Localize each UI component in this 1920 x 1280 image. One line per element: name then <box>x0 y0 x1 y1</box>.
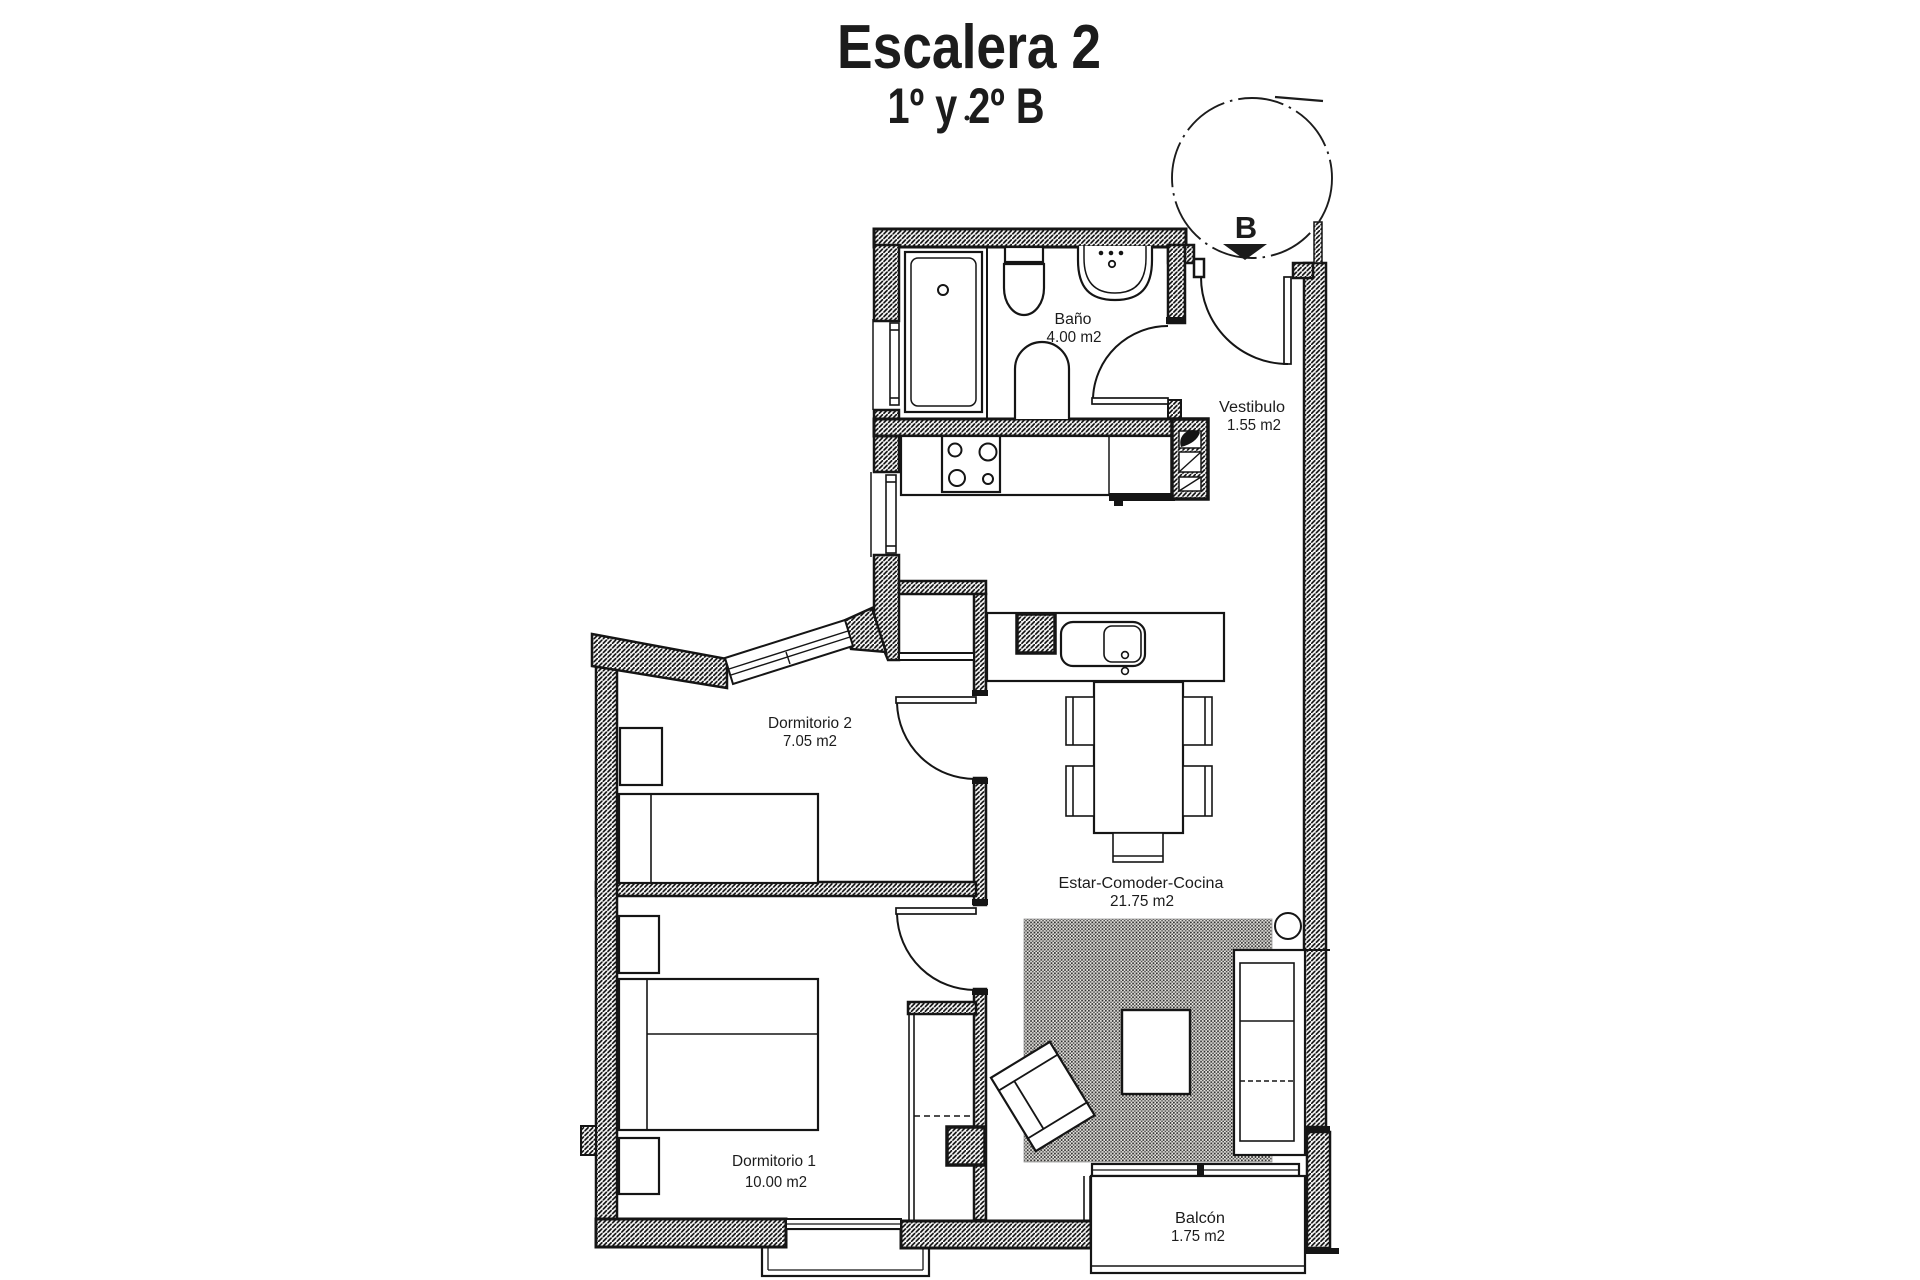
svg-text:1º y 2º B: 1º y 2º B <box>888 78 1045 134</box>
svg-text:Balcón: Balcón <box>1175 1210 1225 1227</box>
svg-text:4.00 m2: 4.00 m2 <box>1047 329 1102 346</box>
svg-text:Dormitorio 1: Dormitorio 1 <box>732 1153 816 1170</box>
svg-text:Estar-Comoder-Cocina: Estar-Comoder-Cocina <box>1059 875 1224 892</box>
svg-text:7.05 m2: 7.05 m2 <box>783 733 837 750</box>
svg-text:1.55 m2: 1.55 m2 <box>1227 417 1281 434</box>
svg-text:Vestibulo: Vestibulo <box>1219 399 1285 416</box>
svg-text:B: B <box>1235 210 1257 245</box>
svg-text:1.75 m2: 1.75 m2 <box>1171 1228 1225 1245</box>
svg-text:21.75 m2: 21.75 m2 <box>1110 893 1174 910</box>
svg-text:Dormitorio 2: Dormitorio 2 <box>768 715 852 732</box>
svg-text:10.00 m2: 10.00 m2 <box>745 1174 807 1191</box>
svg-text:Baño: Baño <box>1055 311 1092 328</box>
svg-text:Escalera 2: Escalera 2 <box>837 13 1101 82</box>
